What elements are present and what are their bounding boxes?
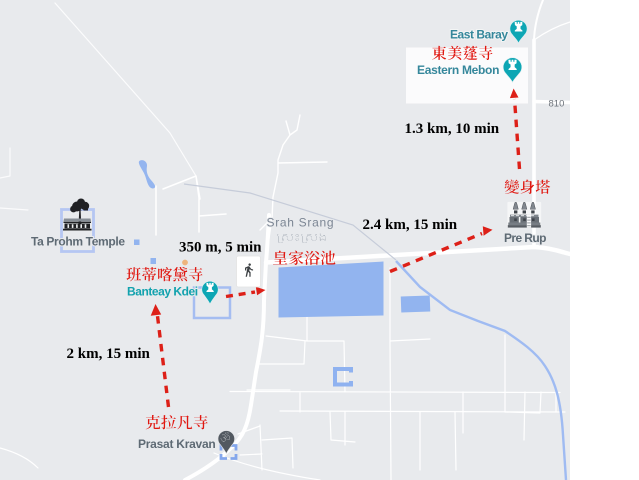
svg-text:Pre Rup: Pre Rup <box>504 231 546 245</box>
svg-text:Prasat Kravan: Prasat Kravan <box>138 437 215 451</box>
svg-text:350 m, 5 min: 350 m, 5 min <box>179 240 262 256</box>
svg-text:Eastern Mebon: Eastern Mebon <box>417 63 499 77</box>
svg-text:2 km, 15 min: 2 km, 15 min <box>67 346 151 362</box>
svg-text:810: 810 <box>549 99 565 110</box>
svg-text:Banteay Kdei: Banteay Kdei <box>127 285 198 299</box>
svg-text:East Baray: East Baray <box>450 28 508 42</box>
svg-text:Ta Prohm Temple: Ta Prohm Temple <box>31 235 125 249</box>
svg-text:2.4 km, 15 min: 2.4 km, 15 min <box>363 217 458 233</box>
svg-text:Srah Srang: Srah Srang <box>267 216 335 230</box>
svg-text:1.3 km, 10 min: 1.3 km, 10 min <box>405 121 500 137</box>
